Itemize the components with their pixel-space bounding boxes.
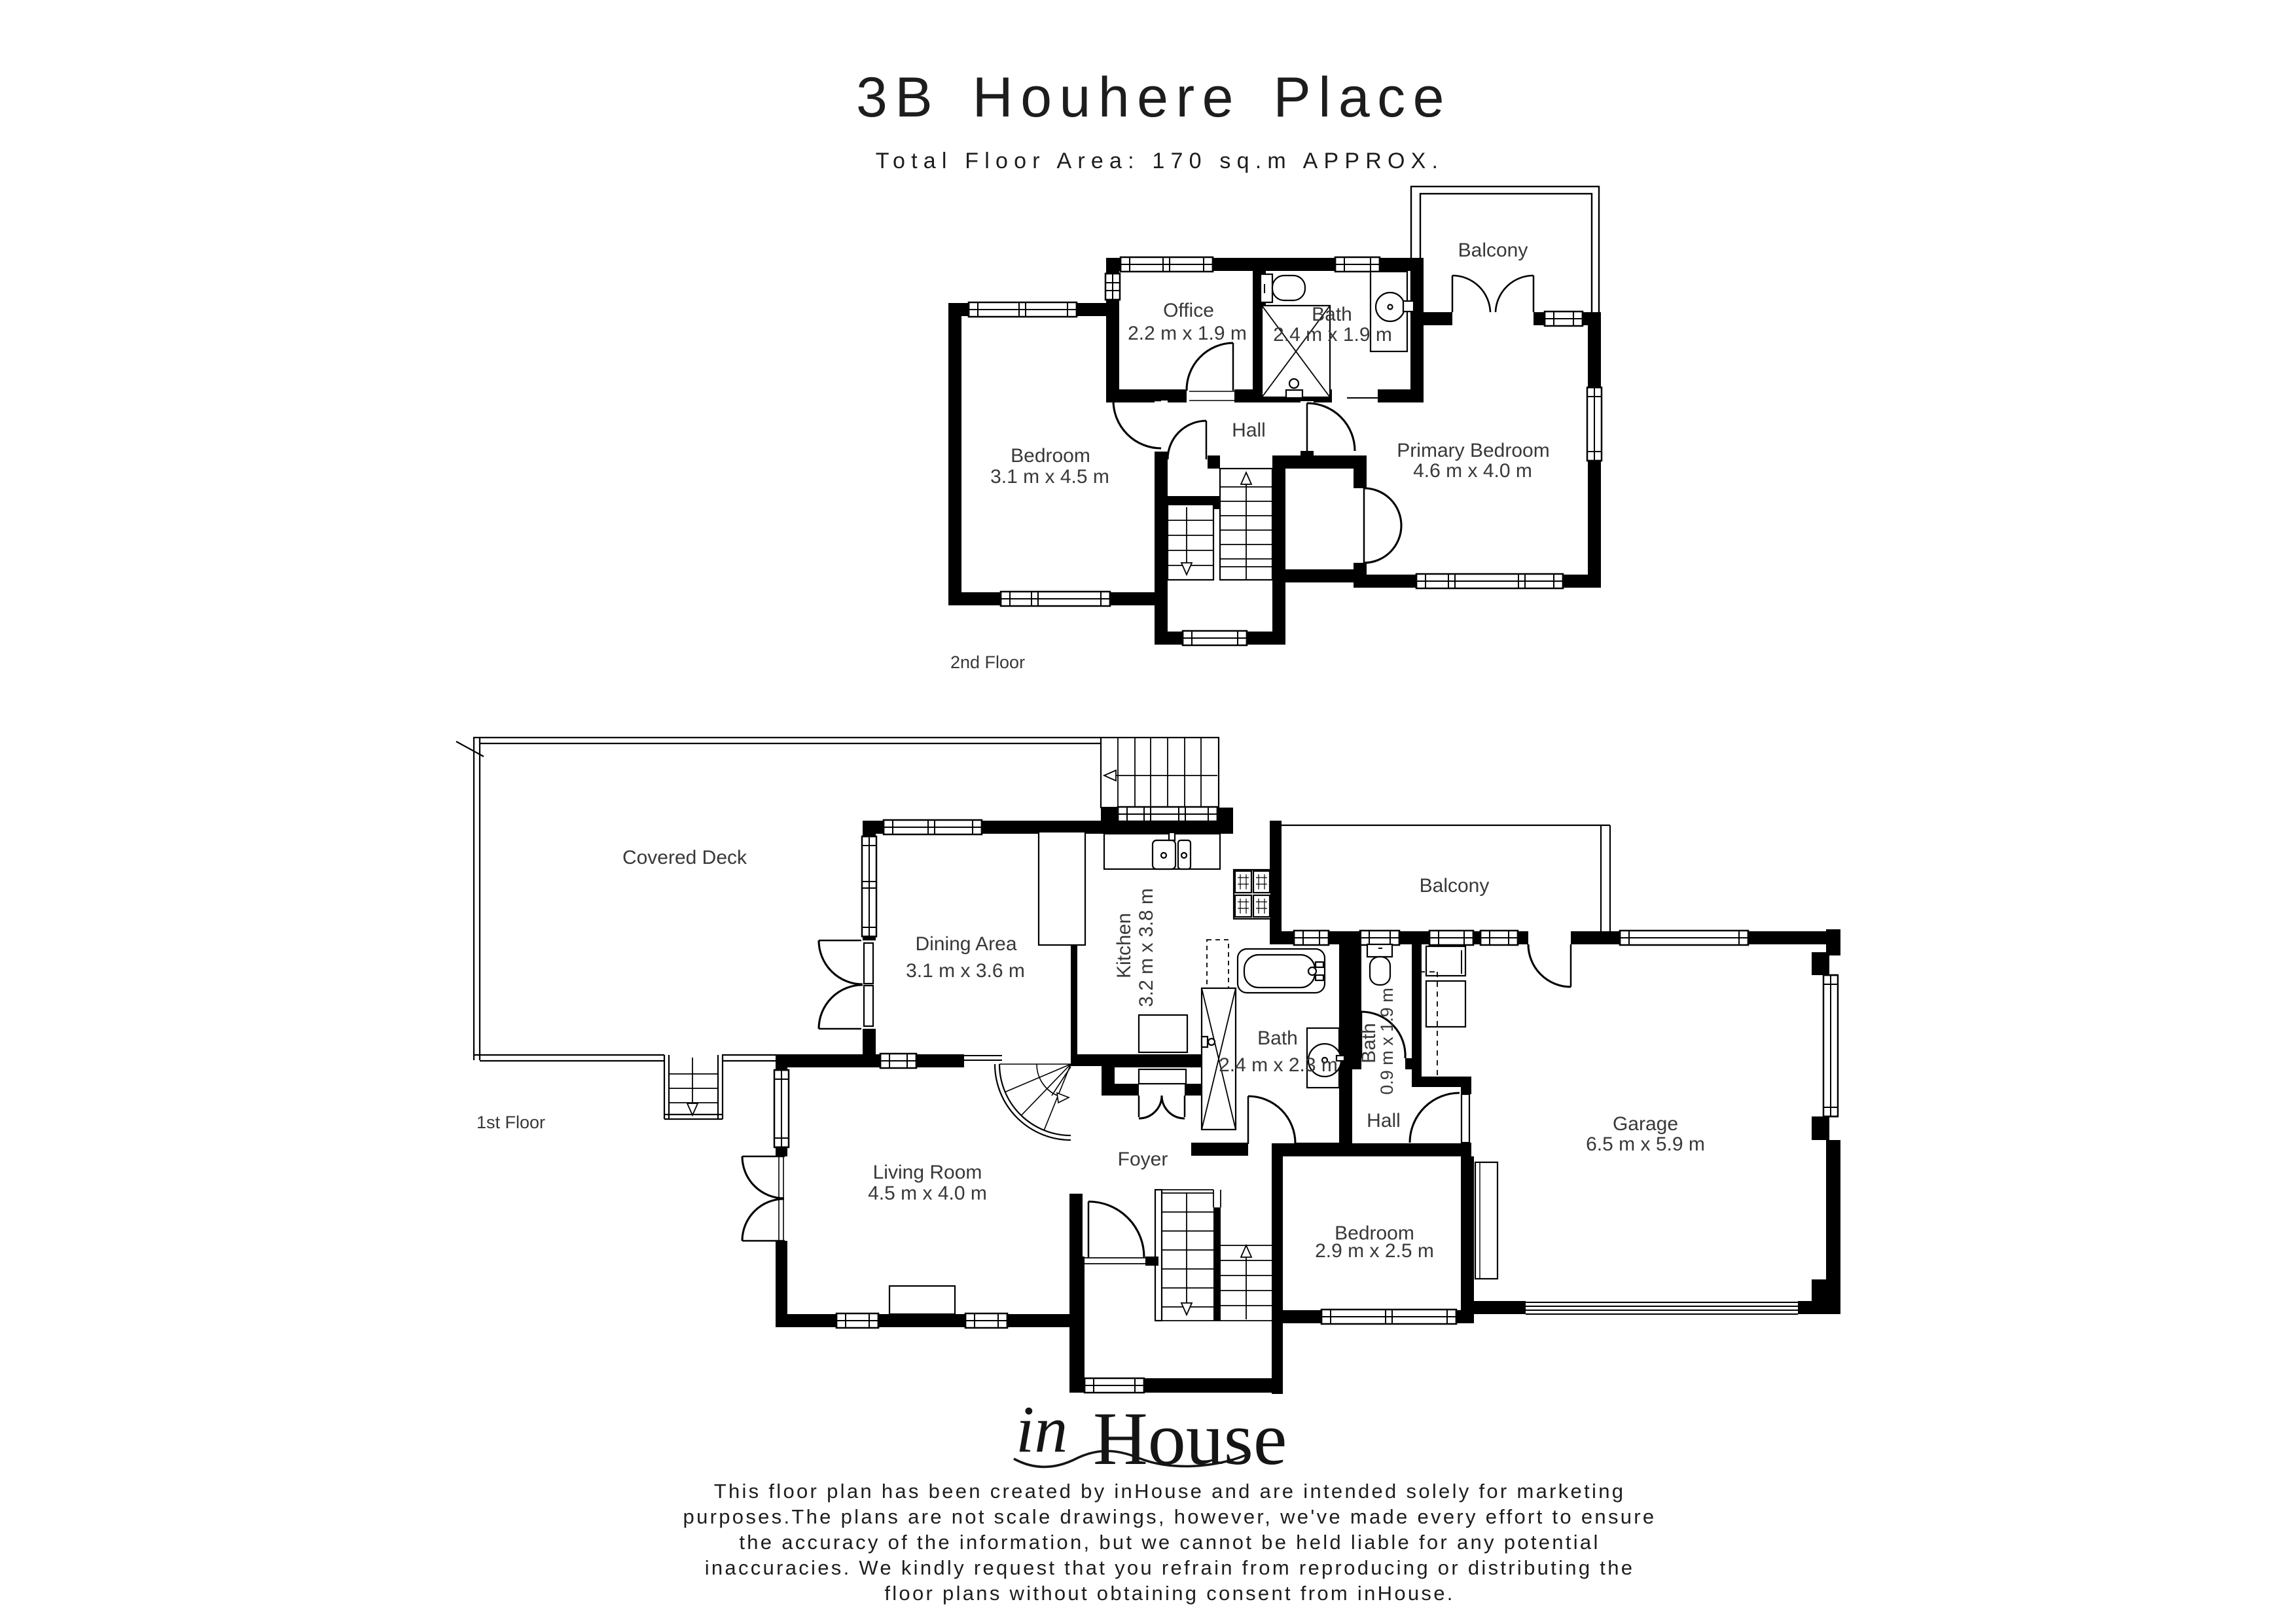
svg-text:2.9 m x 2.5 m: 2.9 m x 2.5 m <box>1315 1240 1434 1262</box>
svg-text:the accuracy of the informatio: the accuracy of the information, but we … <box>739 1531 1600 1554</box>
svg-text:House: House <box>1093 1397 1287 1481</box>
svg-text:3B Houhere Place: 3B Houhere Place <box>856 66 1452 129</box>
svg-text:Balcony: Balcony <box>1458 240 1528 261</box>
svg-text:This floor plan has been creat: This floor plan has been created by inHo… <box>714 1480 1626 1503</box>
svg-text:Bath: Bath <box>1312 304 1352 325</box>
svg-text:Living Room: Living Room <box>873 1162 982 1183</box>
svg-text:floor plans without obtaining: floor plans without obtaining consent fr… <box>884 1582 1454 1605</box>
svg-text:3.2 m x 3.8 m: 3.2 m x 3.8 m <box>1136 888 1157 1007</box>
svg-text:1st Floor: 1st Floor <box>476 1113 545 1132</box>
svg-text:4.6 m x 4.0 m: 4.6 m x 4.0 m <box>1413 460 1532 482</box>
svg-text:Foyer: Foyer <box>1118 1149 1168 1170</box>
svg-text:4.5 m x 4.0 m: 4.5 m x 4.0 m <box>868 1183 987 1204</box>
svg-text:inaccuracies. We kindly reques: inaccuracies. We kindly request that you… <box>705 1556 1635 1579</box>
svg-text:3.1 m x 4.5 m: 3.1 m x 4.5 m <box>990 466 1109 488</box>
svg-text:Hall: Hall <box>1367 1110 1401 1132</box>
svg-text:Garage: Garage <box>1613 1113 1678 1135</box>
svg-text:Total Floor Area: 170 sq.m APP: Total Floor Area: 170 sq.m APPROX. <box>876 149 1444 173</box>
svg-text:Bedroom: Bedroom <box>1011 445 1090 467</box>
svg-text:Bath: Bath <box>1257 1027 1298 1049</box>
svg-text:2.2 m x 1.9 m: 2.2 m x 1.9 m <box>1128 323 1247 344</box>
svg-text:Office: Office <box>1163 300 1214 321</box>
svg-text:Hall: Hall <box>1232 419 1266 441</box>
svg-text:2.4 m x 1.9 m: 2.4 m x 1.9 m <box>1273 324 1392 346</box>
svg-text:2nd Floor: 2nd Floor <box>950 652 1025 672</box>
svg-text:0.9 m x 1.9 m: 0.9 m x 1.9 m <box>1377 988 1397 1095</box>
svg-text:3.1 m x 3.6 m: 3.1 m x 3.6 m <box>906 960 1025 982</box>
svg-text:Primary Bedroom: Primary Bedroom <box>1397 440 1549 461</box>
svg-text:in: in <box>1016 1393 1067 1467</box>
svg-text:6.5 m x 5.9 m: 6.5 m x 5.9 m <box>1586 1133 1705 1155</box>
svg-text:2.4 m x 2.3 m: 2.4 m x 2.3 m <box>1219 1054 1338 1076</box>
svg-text:Balcony: Balcony <box>1420 875 1490 897</box>
svg-text:Kitchen: Kitchen <box>1113 913 1135 978</box>
svg-text:purposes.The plans are not sca: purposes.The plans are not scale drawing… <box>683 1505 1657 1528</box>
svg-text:Dining Area: Dining Area <box>915 933 1016 955</box>
svg-text:Covered Deck: Covered Deck <box>622 847 747 868</box>
